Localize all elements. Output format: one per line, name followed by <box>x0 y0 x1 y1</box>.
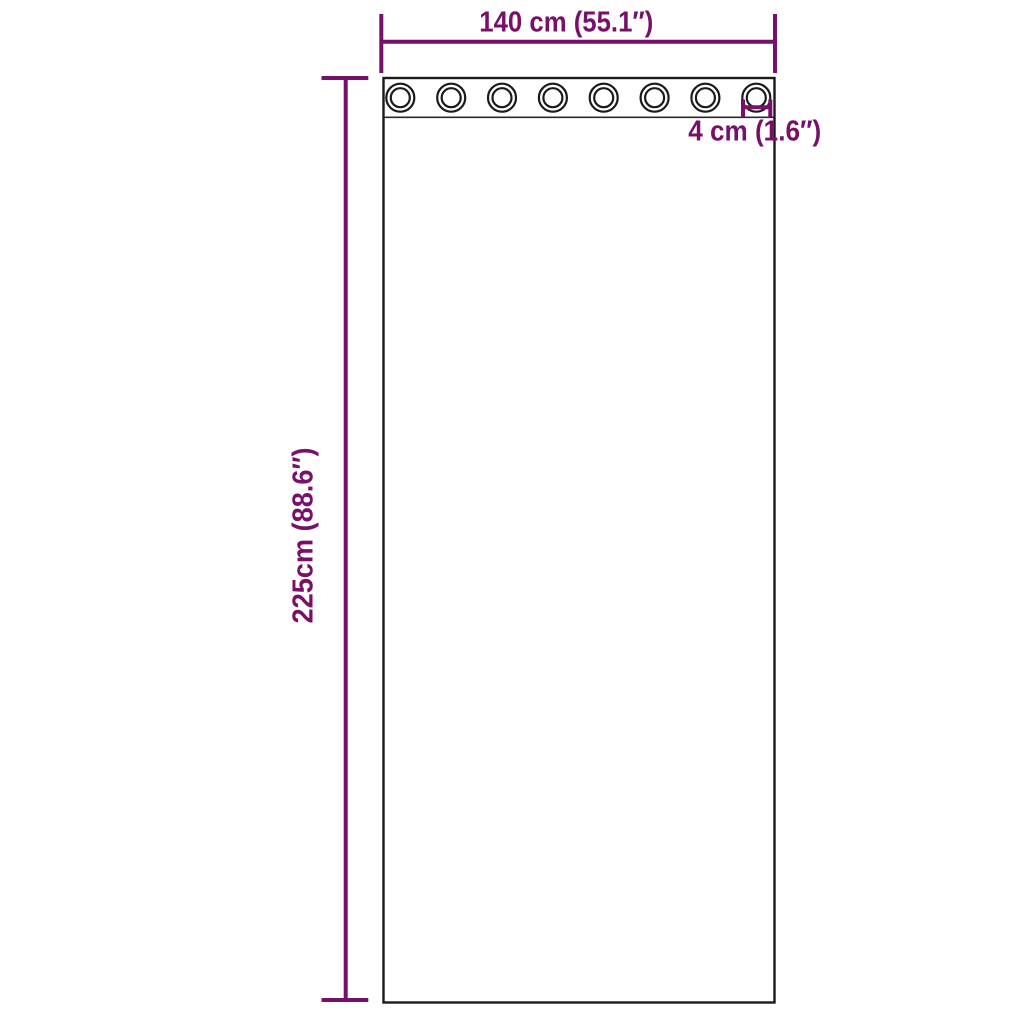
svg-text:140 cm (55.1″): 140 cm (55.1″) <box>479 7 653 39</box>
svg-text:225cm (88.6″): 225cm (88.6″) <box>288 448 320 624</box>
svg-text:4 cm (1.6″): 4 cm (1.6″) <box>688 116 821 148</box>
